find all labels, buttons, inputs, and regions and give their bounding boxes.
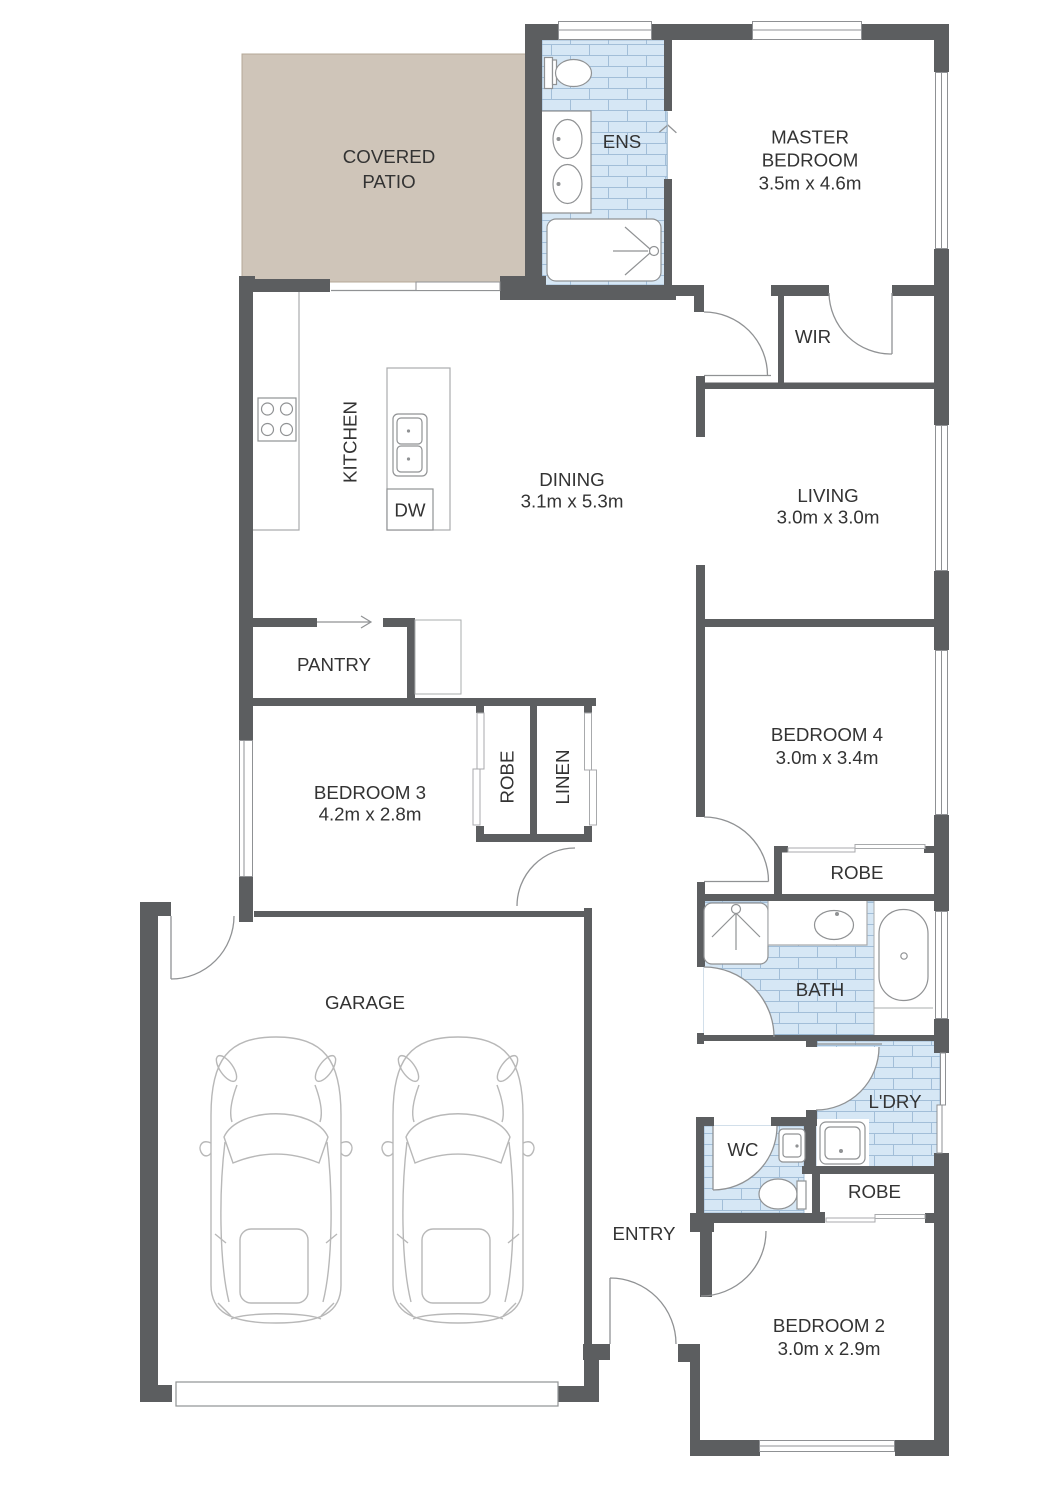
svg-text:DINING: DINING (539, 469, 604, 490)
svg-text:LINEN: LINEN (552, 749, 573, 804)
svg-text:BEDROOM: BEDROOM (762, 150, 859, 171)
svg-text:WIR: WIR (795, 326, 831, 347)
svg-text:L'DRY: L'DRY (868, 1091, 922, 1112)
svg-text:BEDROOM 3: BEDROOM 3 (314, 782, 426, 803)
svg-text:BEDROOM 2: BEDROOM 2 (773, 1315, 885, 1336)
svg-text:4.2m x 2.8m: 4.2m x 2.8m (319, 804, 422, 825)
svg-text:ENS: ENS (603, 131, 641, 152)
svg-text:PANTRY: PANTRY (297, 654, 372, 675)
svg-text:WC: WC (727, 1139, 758, 1160)
svg-text:3.0m x 2.9m: 3.0m x 2.9m (778, 1338, 881, 1359)
svg-text:3.0m x 3.0m: 3.0m x 3.0m (777, 507, 880, 528)
svg-text:ROBE: ROBE (497, 751, 518, 804)
svg-text:COVERED: COVERED (343, 146, 435, 167)
svg-text:PATIO: PATIO (362, 171, 415, 192)
svg-text:BEDROOM 4: BEDROOM 4 (771, 724, 883, 745)
svg-text:GARAGE: GARAGE (325, 992, 405, 1013)
svg-text:3.0m x 3.4m: 3.0m x 3.4m (776, 747, 879, 768)
svg-text:KITCHEN: KITCHEN (340, 401, 361, 483)
svg-text:3.1m x 5.3m: 3.1m x 5.3m (521, 491, 624, 512)
svg-text:BATH: BATH (796, 979, 844, 1000)
svg-text:DW: DW (394, 500, 425, 521)
svg-text:ENTRY: ENTRY (613, 1223, 677, 1244)
svg-text:ROBE: ROBE (848, 1181, 901, 1202)
svg-text:ROBE: ROBE (831, 862, 884, 883)
svg-text:LIVING: LIVING (797, 485, 858, 506)
svg-text:MASTER: MASTER (771, 127, 849, 148)
svg-text:3.5m x 4.6m: 3.5m x 4.6m (759, 173, 862, 194)
